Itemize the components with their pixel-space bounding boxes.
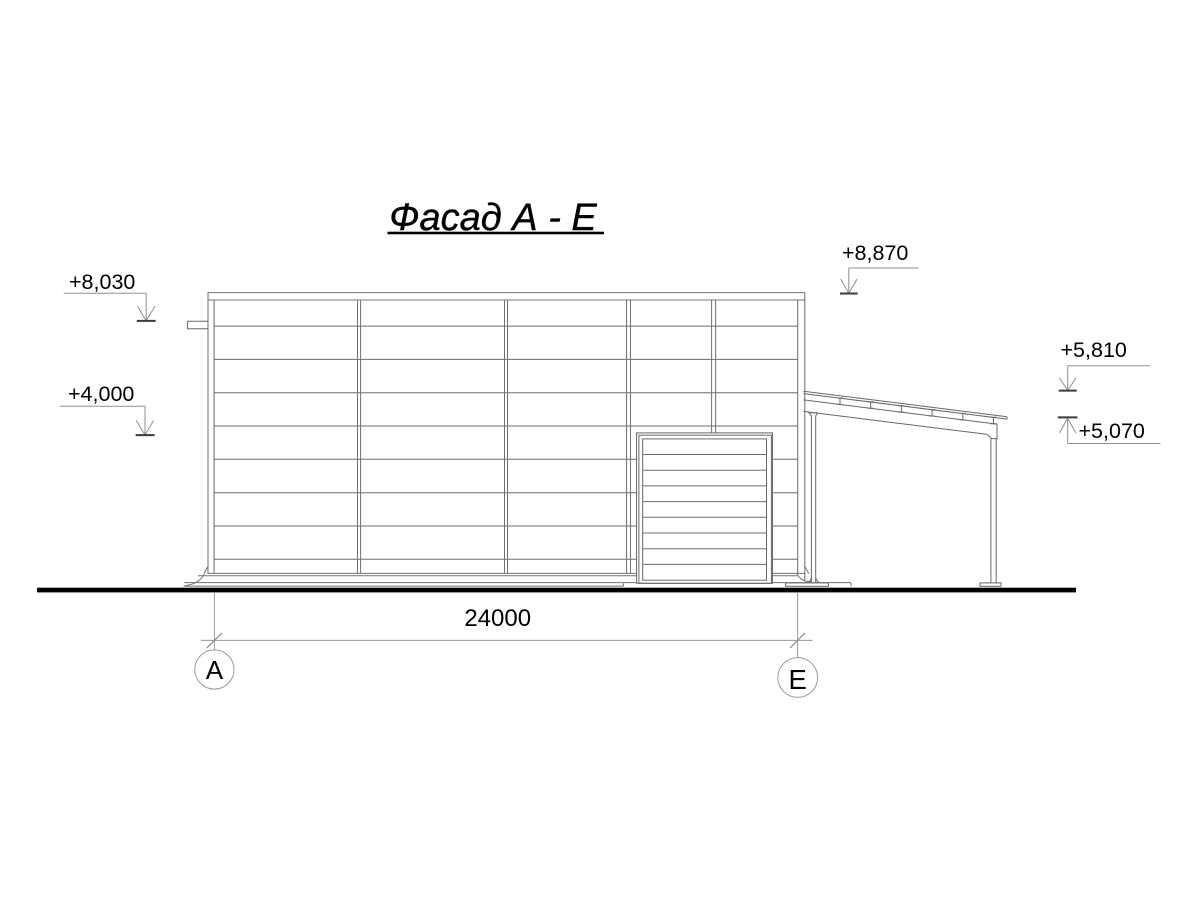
svg-text:+5,810: +5,810 xyxy=(1061,338,1127,362)
svg-text:+4,000: +4,000 xyxy=(68,382,134,406)
svg-text:+8,870: +8,870 xyxy=(842,241,908,265)
svg-text:+8,030: +8,030 xyxy=(69,270,135,294)
svg-text:Е: Е xyxy=(789,664,807,695)
svg-text:А: А xyxy=(206,655,224,685)
svg-text:+5,070: +5,070 xyxy=(1079,419,1145,443)
svg-text:24000: 24000 xyxy=(464,605,531,632)
